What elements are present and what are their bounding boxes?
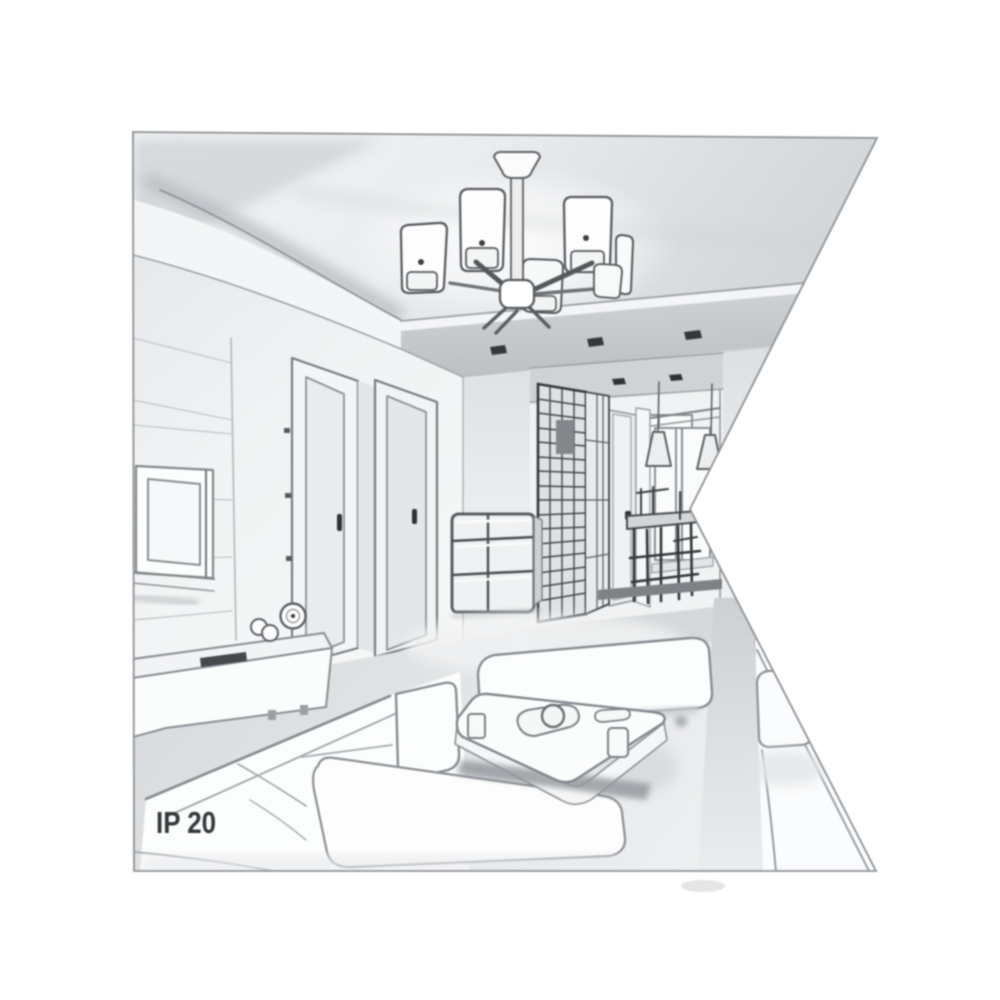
svg-text:IP 20: IP 20: [156, 805, 216, 840]
